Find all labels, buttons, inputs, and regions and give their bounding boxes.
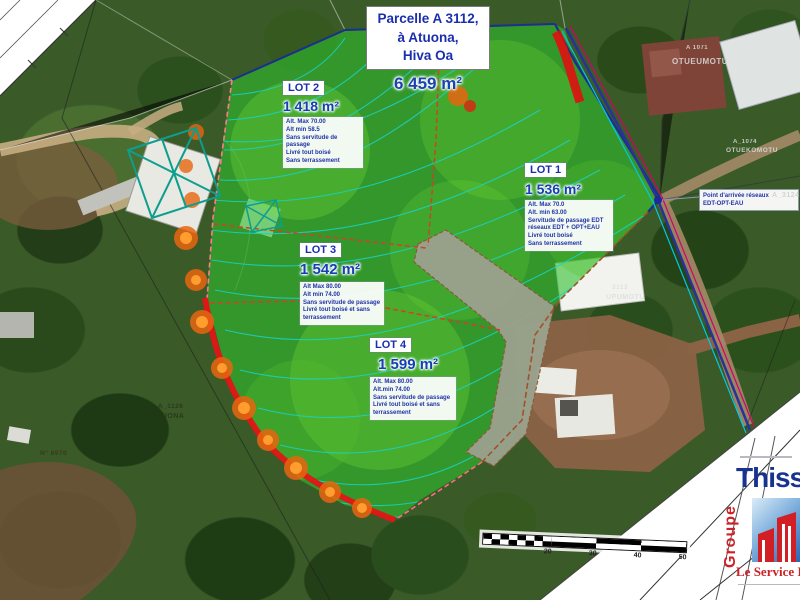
lot1-details: Alt. Max 70.0 Alt. min 63.00 Servitude d…: [525, 200, 613, 251]
parcel-title-box: Parcelle A 3112, à Atuona, Hiva Oa: [366, 6, 490, 70]
scale-label-30: 30: [589, 550, 597, 557]
total-area-label: 6 459 m²: [368, 74, 488, 94]
scale-label-20: 20: [544, 548, 552, 555]
logo-tower-icon: [758, 528, 774, 562]
cadastre-upumotu: UPUMOTU: [606, 294, 645, 301]
parcel-title-line3: Hiva Oa: [367, 47, 489, 66]
cadastre-n8970: N° 8970: [40, 450, 67, 457]
cadastre-a1071: A 1071: [686, 45, 708, 51]
cadastre-otueumotu: OTUEUMOTU: [672, 57, 728, 66]
lot1-name: LOT 1: [525, 163, 566, 177]
lot1-area: 1 536 m²: [525, 181, 613, 197]
cadastre-a3113: 3113: [612, 284, 628, 291]
lot3-area: 1 542 m²: [300, 261, 384, 278]
lot3-details: Alt Max 80.00 Alt min 74.00 Sans servitu…: [300, 282, 384, 325]
lot2-name: LOT 2: [283, 81, 324, 95]
agency-logo: Thisse Groupe Le Service Immo: [716, 452, 800, 597]
logo-tower-icon: [777, 512, 796, 562]
aerial-survey-map: Parcelle A 3112, à Atuona, Hiva Oa 6 459…: [0, 0, 800, 600]
parcel-title-line1: Parcelle A 3112,: [367, 10, 489, 29]
parcel-title-line2: à Atuona,: [367, 29, 489, 48]
lot4-area: 1 599 m²: [378, 356, 456, 373]
logo-tagline: Le Service Immo: [736, 564, 800, 580]
scale-label-50: 50: [679, 554, 687, 561]
lot3-group: LOT 3 1 542 m² Alt Max 80.00 Alt min 74.…: [300, 240, 384, 325]
lot1-group: LOT 1 1 536 m² Alt. Max 70.0 Alt. min 63…: [525, 160, 613, 251]
cadastre-a1126: A_1126: [158, 403, 183, 410]
cadastre-a1074: A_1074: [733, 139, 757, 145]
cadastre-a3124: A_3124: [772, 192, 800, 199]
lot2-details: Alt. Max 70.00 Alt min 58.5 Sans servitu…: [283, 117, 363, 168]
lot4-details: Alt. Max 80.00 Alt.min 74.00 Sans servit…: [370, 377, 456, 420]
logo-brand-name: Thisse: [736, 462, 800, 494]
lot2-group: LOT 2 1 418 m² Alt. Max 70.00 Alt min 58…: [283, 78, 363, 168]
logo-fineprint-bottom: [738, 584, 800, 585]
plan-corner-top-left: [0, 0, 96, 96]
lot4-group: LOT 4 1 599 m² Alt. Max 80.00 Alt.min 74…: [370, 335, 456, 420]
cadastre-atuona: ATUONA: [152, 413, 184, 420]
cadastre-otuekomotu: OTUEKOMOTU: [726, 147, 778, 154]
lot2-area: 1 418 m²: [283, 98, 363, 114]
network-junction-point: [654, 196, 662, 204]
lot4-name: LOT 4: [370, 338, 411, 352]
logo-building-emblem: [752, 498, 800, 562]
logo-group-word: Groupe: [722, 498, 742, 568]
scale-label-40: 40: [634, 552, 642, 559]
lot3-name: LOT 3: [300, 243, 341, 257]
logo-fineprint-top: [740, 456, 792, 458]
